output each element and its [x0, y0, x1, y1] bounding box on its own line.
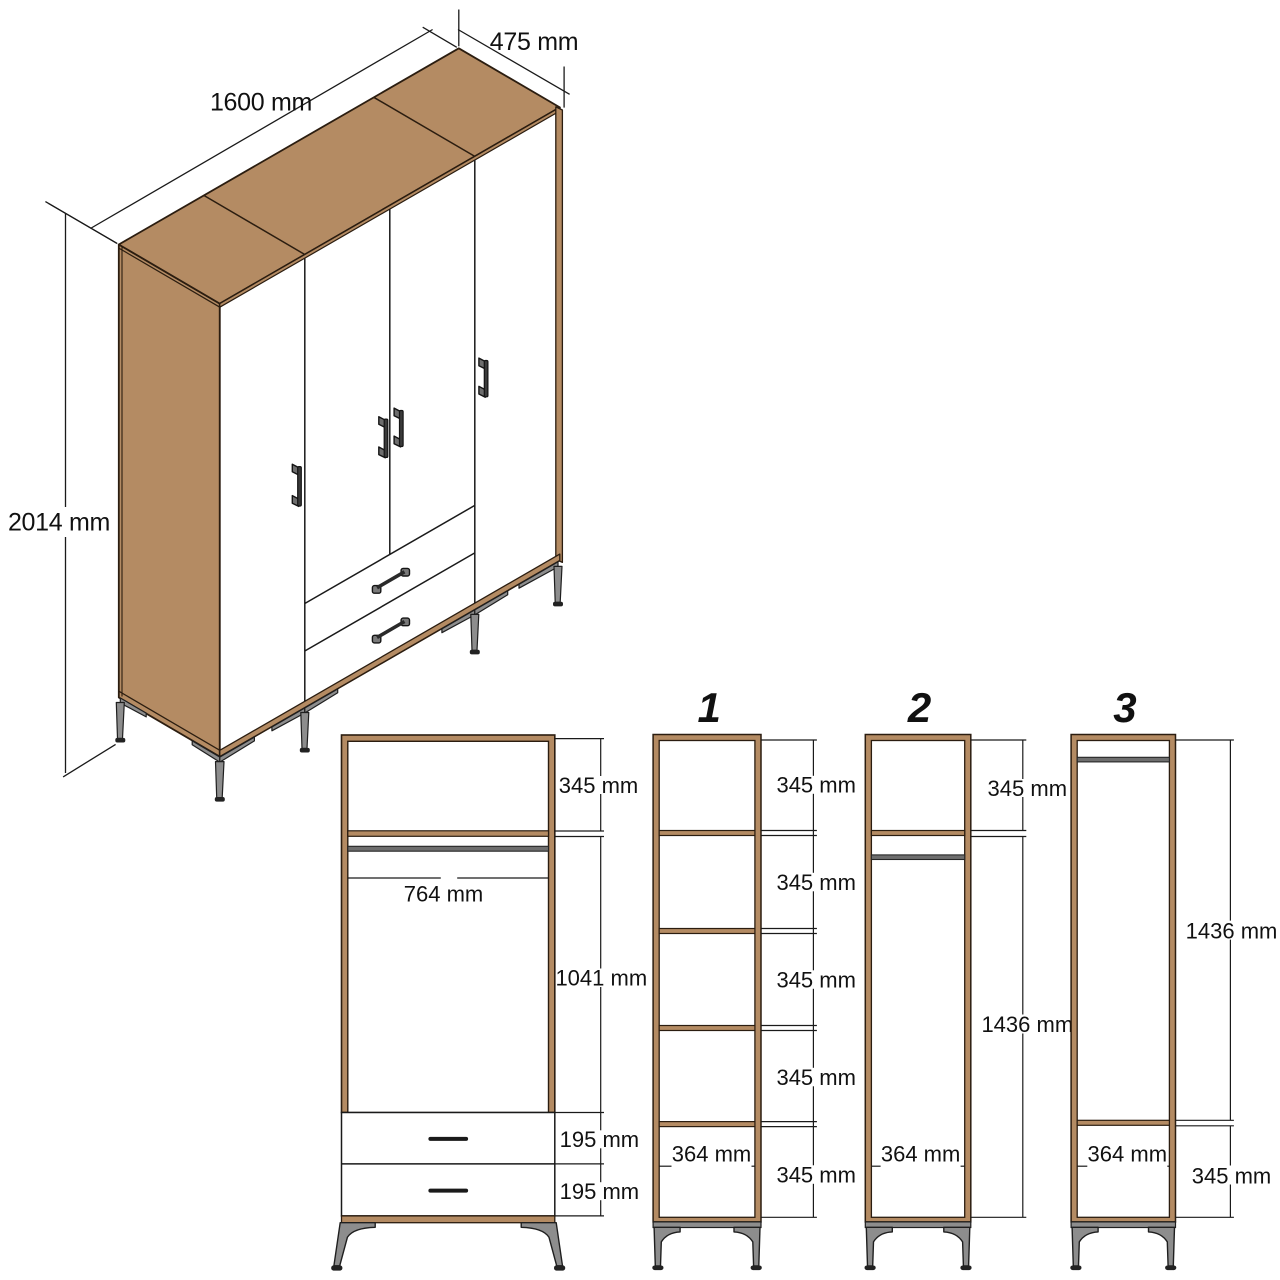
svg-text:345 mm: 345 mm — [776, 1065, 855, 1090]
svg-text:345 mm: 345 mm — [776, 870, 855, 895]
svg-text:1: 1 — [698, 684, 721, 731]
svg-text:1600 mm: 1600 mm — [210, 88, 312, 116]
svg-text:475 mm: 475 mm — [490, 28, 579, 56]
svg-text:3: 3 — [1113, 684, 1136, 731]
svg-text:345 mm: 345 mm — [776, 1163, 855, 1188]
svg-text:195 mm: 195 mm — [560, 1179, 639, 1204]
svg-text:764 mm: 764 mm — [404, 881, 483, 906]
svg-text:2014 mm: 2014 mm — [8, 509, 110, 537]
svg-text:364 mm: 364 mm — [672, 1142, 751, 1167]
svg-text:345 mm: 345 mm — [776, 773, 855, 798]
svg-text:1041 mm: 1041 mm — [555, 965, 647, 990]
svg-text:2: 2 — [907, 684, 931, 731]
svg-text:1436 mm: 1436 mm — [1186, 918, 1278, 943]
svg-text:364 mm: 364 mm — [1088, 1142, 1167, 1167]
svg-text:345 mm: 345 mm — [559, 773, 638, 798]
svg-text:195 mm: 195 mm — [560, 1127, 639, 1152]
svg-text:345 mm: 345 mm — [1192, 1163, 1271, 1188]
svg-text:345 mm: 345 mm — [988, 776, 1067, 801]
svg-text:364 mm: 364 mm — [881, 1142, 960, 1167]
svg-text:345 mm: 345 mm — [776, 968, 855, 993]
svg-text:1436 mm: 1436 mm — [981, 1012, 1073, 1037]
